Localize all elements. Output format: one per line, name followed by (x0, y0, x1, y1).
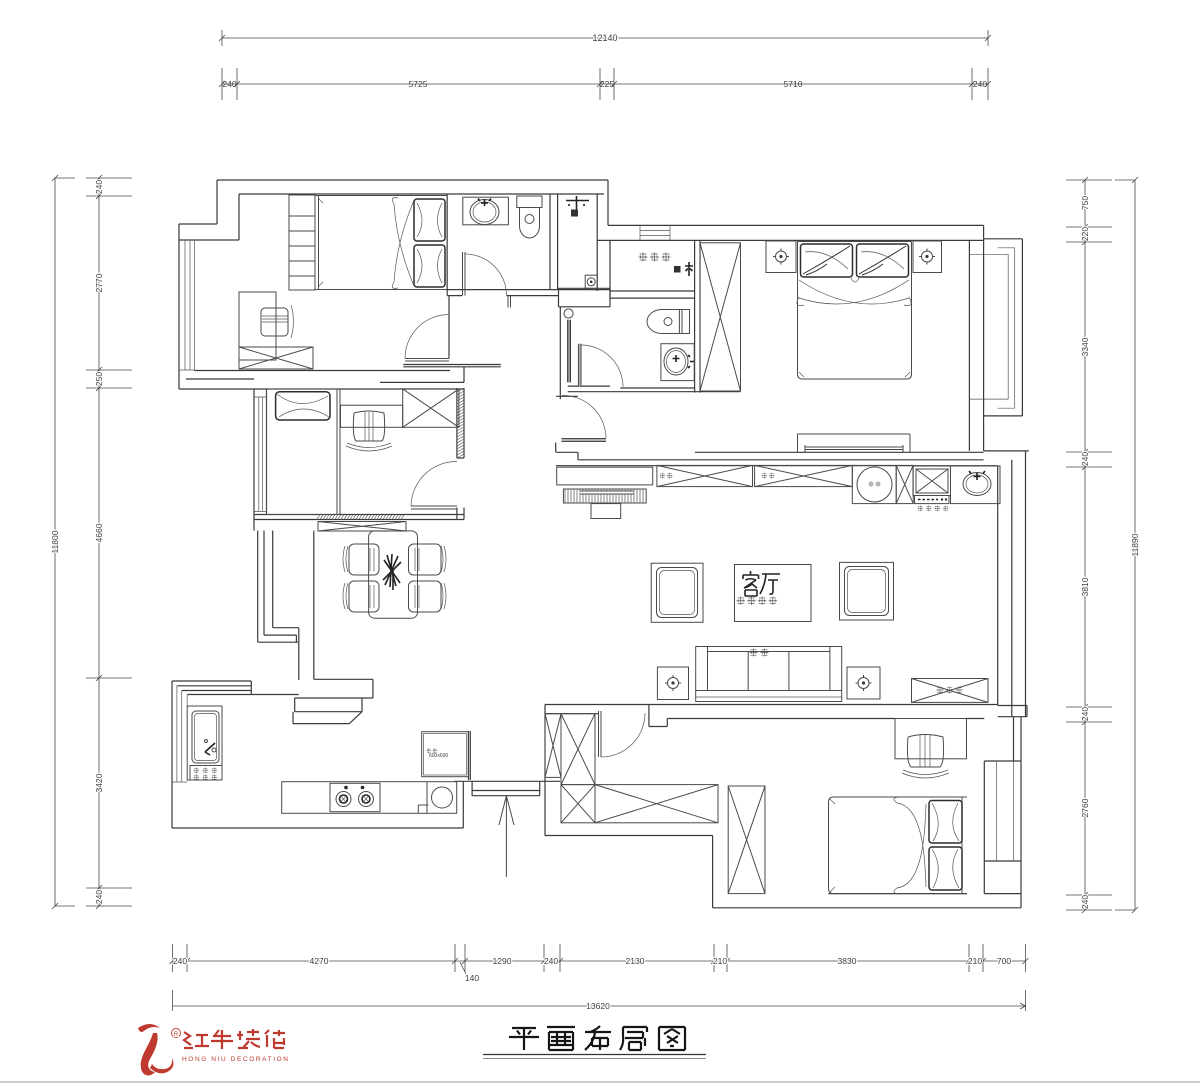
svg-text:11800: 11800 (50, 530, 60, 553)
svg-text:140: 140 (465, 973, 479, 983)
svg-text:2760: 2760 (1080, 798, 1090, 817)
svg-text:600x600: 600x600 (429, 753, 448, 759)
svg-text:4270: 4270 (310, 956, 329, 966)
svg-text:240: 240 (1080, 707, 1090, 721)
svg-text:240: 240 (1080, 895, 1090, 909)
svg-text:3830: 3830 (838, 956, 857, 966)
svg-text:12140: 12140 (592, 33, 617, 43)
svg-text:3810: 3810 (1080, 577, 1090, 596)
svg-text:3340: 3340 (1080, 337, 1090, 356)
svg-text:210: 210 (968, 956, 982, 966)
svg-text:220: 220 (1080, 227, 1090, 241)
svg-text:240: 240 (544, 956, 558, 966)
svg-text:1290: 1290 (493, 956, 512, 966)
svg-text:13620: 13620 (586, 1001, 610, 1011)
svg-text:3420: 3420 (94, 773, 104, 792)
svg-text:210: 210 (713, 956, 727, 966)
svg-text:240: 240 (173, 956, 187, 966)
svg-text:2130: 2130 (626, 956, 645, 966)
svg-text:750: 750 (1080, 196, 1090, 210)
svg-text:11890: 11890 (1130, 533, 1140, 556)
svg-text:250: 250 (94, 372, 104, 386)
svg-text:4660: 4660 (94, 523, 104, 542)
svg-text:240: 240 (94, 180, 104, 194)
svg-text:240: 240 (94, 890, 104, 904)
svg-text:R: R (174, 1032, 179, 1038)
svg-text:HONG NIU DECORATION: HONG NIU DECORATION (182, 1056, 290, 1063)
svg-text:2770: 2770 (94, 273, 104, 292)
svg-text:700: 700 (997, 956, 1011, 966)
svg-text:240: 240 (1080, 452, 1090, 466)
